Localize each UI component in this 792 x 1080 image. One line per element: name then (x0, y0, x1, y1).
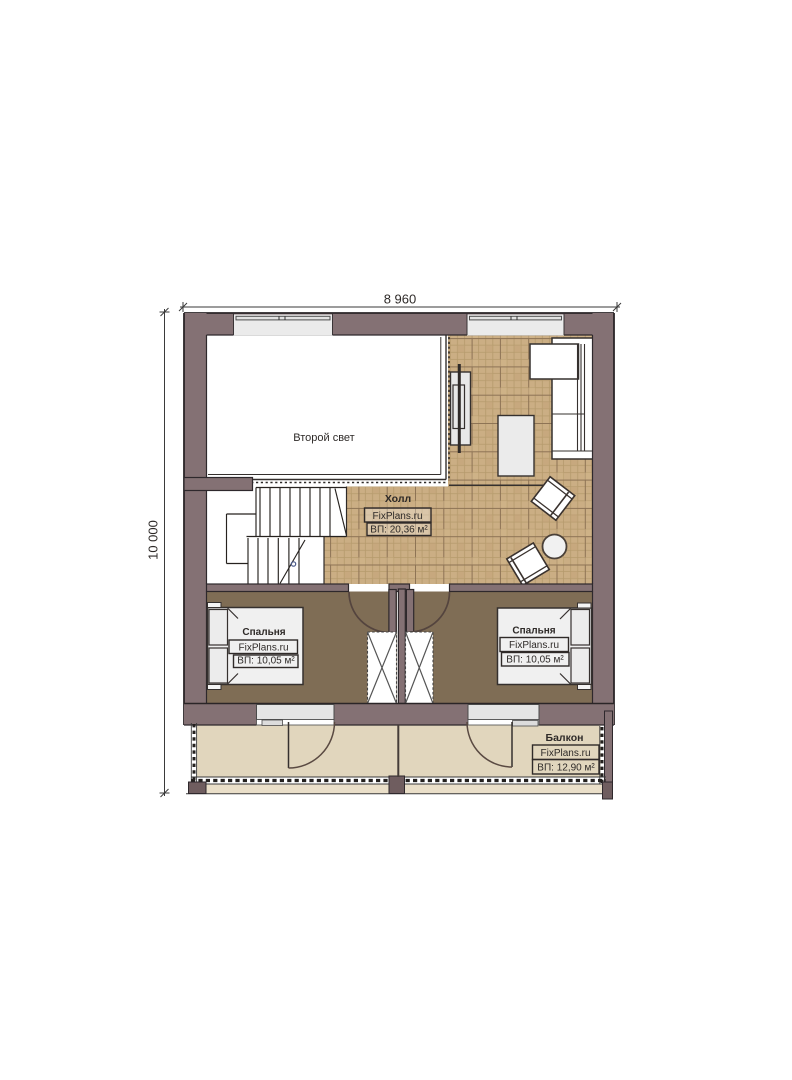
svg-text:Спальня: Спальня (512, 626, 555, 637)
svg-text:ВП: 10,05 м²: ВП: 10,05 м² (506, 654, 564, 665)
svg-text:10 000: 10 000 (146, 520, 161, 560)
svg-text:FixPlans.ru: FixPlans.ru (238, 642, 288, 653)
svg-text:ВП: 20,36 м²: ВП: 20,36 м² (370, 525, 428, 536)
svg-text:Второй свет: Второй свет (293, 432, 354, 444)
svg-text:FixPlans.ru: FixPlans.ru (509, 640, 559, 651)
svg-text:Холл: Холл (385, 493, 411, 505)
svg-text:8 960: 8 960 (384, 292, 417, 307)
svg-text:Балкон: Балкон (546, 732, 584, 744)
svg-text:ВП: 12,90 м²: ВП: 12,90 м² (537, 763, 595, 774)
svg-text:Спальня: Спальня (242, 627, 285, 638)
svg-text:FixPlans.ru: FixPlans.ru (372, 511, 422, 522)
svg-text:FixPlans.ru: FixPlans.ru (540, 748, 590, 759)
svg-text:ВП: 10,05 м²: ВП: 10,05 м² (237, 656, 295, 667)
